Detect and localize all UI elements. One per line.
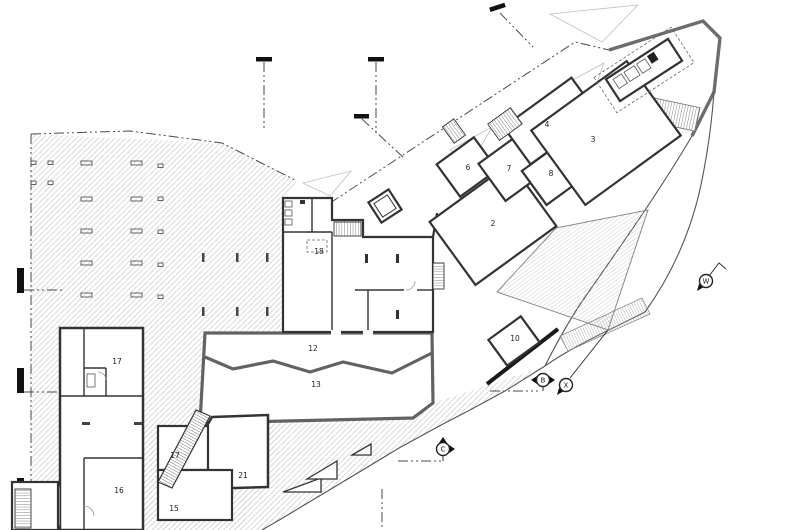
section-marker-b: B <box>531 374 555 387</box>
stair-middle-building <box>334 222 361 236</box>
middle-building <box>283 189 444 335</box>
section-marker-w: W <box>697 275 713 292</box>
floor-plan-canvas: 234678101213151617171821 BXCW <box>0 0 800 530</box>
marker-letter-c: C <box>441 445 446 453</box>
section-marker-c: C <box>437 437 456 456</box>
room-label-12: 12 <box>308 344 318 353</box>
middle-building-outline <box>283 198 433 332</box>
room-label-3: 3 <box>591 135 596 144</box>
room-label-4: 4 <box>545 120 550 129</box>
marker-letter-b: B <box>541 376 546 384</box>
room-label-21: 21 <box>238 471 248 480</box>
room-label-17: 17 <box>170 451 180 460</box>
southwest-annex <box>12 482 58 530</box>
room-label-16: 16 <box>114 486 124 495</box>
room-label-2: 2 <box>491 219 496 228</box>
room-label-17: 17 <box>112 357 122 366</box>
exterior-stair-east <box>433 263 444 289</box>
room-label-15: 15 <box>169 504 179 513</box>
room-label-6: 6 <box>466 163 471 172</box>
room-label-13: 13 <box>311 380 321 389</box>
marker-letter-x: X <box>564 381 569 389</box>
room-label-7: 7 <box>507 164 512 173</box>
marker-letter-w: W <box>703 277 710 285</box>
stair-upper-wing-small <box>442 119 465 143</box>
floor-plan-drawing: 234678101213151617171821 BXCW <box>0 0 800 530</box>
room-label-18: 18 <box>314 247 324 256</box>
room-label-10: 10 <box>510 334 520 343</box>
block-16-17-outline <box>60 328 143 530</box>
section-marker-x: X <box>557 379 573 396</box>
room-label-8: 8 <box>549 169 554 178</box>
link-vestibule <box>368 189 401 222</box>
